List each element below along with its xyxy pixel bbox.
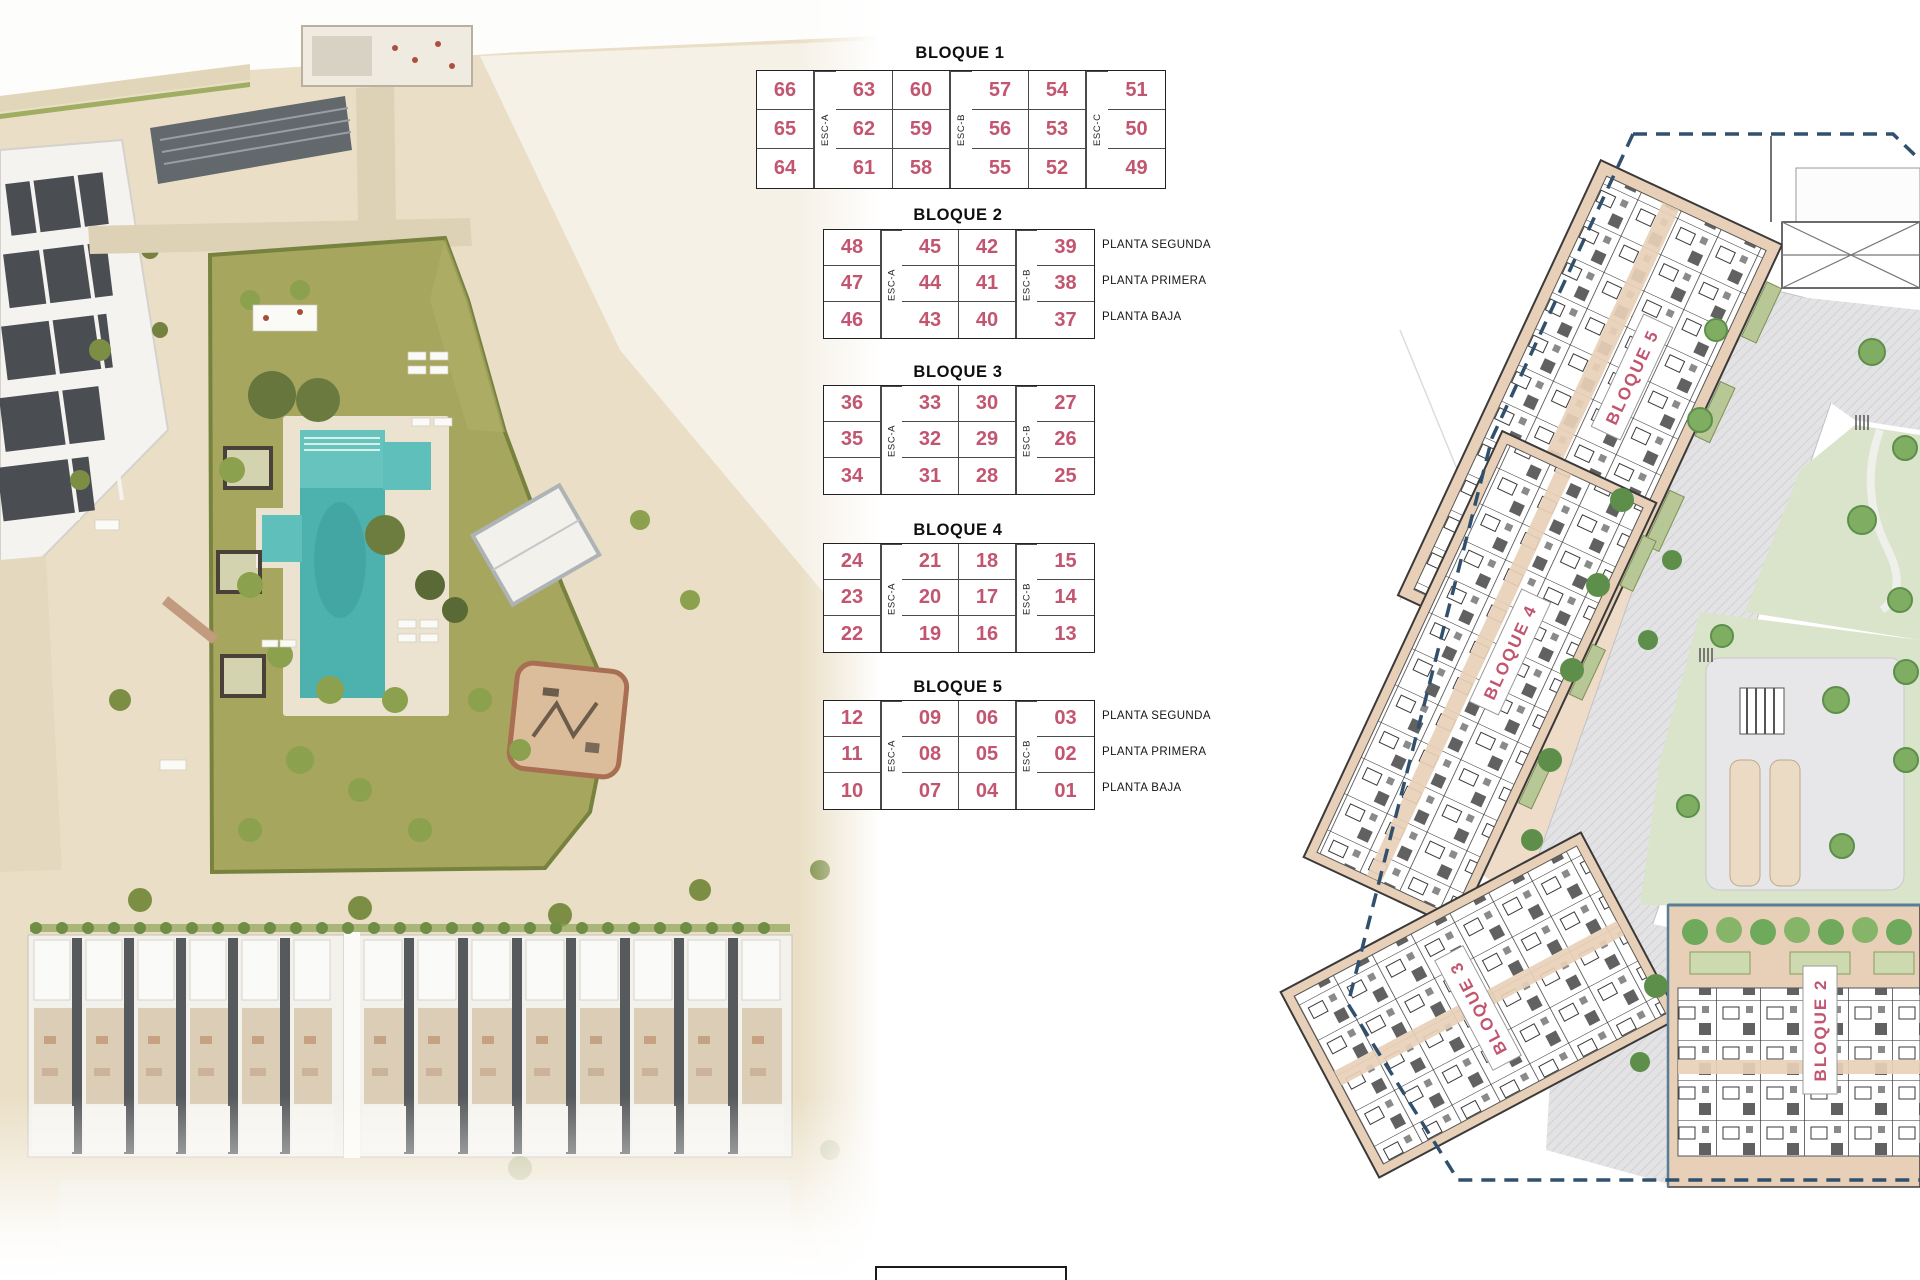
- unit-number: 27: [1037, 386, 1094, 422]
- unit-number: 56: [972, 110, 1029, 149]
- unit-number: 20: [902, 580, 959, 616]
- unit-number: 46: [824, 302, 881, 338]
- unit-number: 07: [902, 773, 959, 809]
- unit-number: 12: [824, 701, 881, 737]
- stair-label: ESC-B: [1016, 230, 1037, 338]
- bloque-grid: 12ESC-A0906ESC-B031108050210070401: [823, 700, 1095, 810]
- unit-number: 55: [972, 149, 1029, 188]
- unit-number: 16: [959, 616, 1016, 652]
- unit-number: 49: [1108, 149, 1165, 188]
- bloque-title: BLOQUE 2: [823, 206, 1093, 225]
- planta-label: PLANTA SEGUNDA: [1102, 710, 1211, 722]
- unit-number: 54: [1029, 71, 1086, 110]
- unit-number: 03: [1037, 701, 1094, 737]
- unit-number: 26: [1037, 422, 1094, 458]
- unit-number: 18: [959, 544, 1016, 580]
- unit-number: 34: [824, 458, 881, 494]
- unit-number: 11: [824, 737, 881, 773]
- page: BLOQUE 5 BLOQUE 4 BLOQUE 3 BLOQUE 2 BLOQ…: [0, 0, 1920, 1280]
- unit-number: 40: [959, 302, 1016, 338]
- stair-label: ESC-C: [1086, 71, 1108, 188]
- unit-number: 60: [893, 71, 950, 110]
- stair-label: ESC-B: [950, 71, 972, 188]
- unit-number: 22: [824, 616, 881, 652]
- planta-label: PLANTA SEGUNDA: [1102, 239, 1211, 251]
- bloque-title: BLOQUE 4: [823, 521, 1093, 540]
- unit-number: 62: [836, 110, 893, 149]
- unit-number: 32: [902, 422, 959, 458]
- planta-label: PLANTA BAJA: [1102, 311, 1182, 323]
- unit-number: 02: [1037, 737, 1094, 773]
- unit-number: 48: [824, 230, 881, 266]
- unit-number: 45: [902, 230, 959, 266]
- unit-number: 31: [902, 458, 959, 494]
- unit-number: 39: [1037, 230, 1094, 266]
- stair-label: ESC-A: [881, 230, 902, 338]
- unit-number: 51: [1108, 71, 1165, 110]
- unit-number: 63: [836, 71, 893, 110]
- stair-label: ESC-A: [814, 71, 836, 188]
- stair-label: ESC-B: [1016, 701, 1037, 809]
- unit-number: 05: [959, 737, 1016, 773]
- planta-label: PLANTA BAJA: [1102, 782, 1182, 794]
- unit-number: 36: [824, 386, 881, 422]
- bloque-title: BLOQUE 1: [756, 44, 1164, 63]
- unit-number: 52: [1029, 149, 1086, 188]
- unit-number: 35: [824, 422, 881, 458]
- unit-number: 37: [1037, 302, 1094, 338]
- planta-label: PLANTA PRIMERA: [1102, 746, 1206, 758]
- stair-label: ESC-A: [881, 386, 902, 494]
- unit-number: 41: [959, 266, 1016, 302]
- stair-label: ESC-A: [881, 701, 902, 809]
- unit-number: 09: [902, 701, 959, 737]
- unit-number: 64: [757, 149, 814, 188]
- bloque-grid: 36ESC-A3330ESC-B273532292634312825: [823, 385, 1095, 495]
- unit-number: 17: [959, 580, 1016, 616]
- unit-tables: BLOQUE 166ESC-A6360ESC-B5754ESC-C5165625…: [0, 0, 1920, 1280]
- unit-number: 10: [824, 773, 881, 809]
- bloque-grid: 48ESC-A4542ESC-B394744413846434037: [823, 229, 1095, 339]
- unit-number: 57: [972, 71, 1029, 110]
- unit-number: 08: [902, 737, 959, 773]
- unit-number: 61: [836, 149, 893, 188]
- stair-label: ESC-B: [1016, 544, 1037, 652]
- unit-number: 30: [959, 386, 1016, 422]
- bloque-title: BLOQUE 5: [823, 678, 1093, 697]
- unit-number: 19: [902, 616, 959, 652]
- unit-number: 53: [1029, 110, 1086, 149]
- unit-number: 66: [757, 71, 814, 110]
- unit-number: 33: [902, 386, 959, 422]
- unit-number: 47: [824, 266, 881, 302]
- unit-number: 28: [959, 458, 1016, 494]
- unit-number: 42: [959, 230, 1016, 266]
- unit-number: 01: [1037, 773, 1094, 809]
- unit-number: 23: [824, 580, 881, 616]
- unit-number: 65: [757, 110, 814, 149]
- unit-number: 50: [1108, 110, 1165, 149]
- bloque-grid: 24ESC-A2118ESC-B152320171422191613: [823, 543, 1095, 653]
- unit-number: 14: [1037, 580, 1094, 616]
- stair-label: ESC-B: [1016, 386, 1037, 494]
- planta-label: PLANTA PRIMERA: [1102, 275, 1206, 287]
- unit-number: 59: [893, 110, 950, 149]
- unit-number: 29: [959, 422, 1016, 458]
- unit-number: 38: [1037, 266, 1094, 302]
- unit-number: 25: [1037, 458, 1094, 494]
- unit-number: 13: [1037, 616, 1094, 652]
- bloque-grid: 66ESC-A6360ESC-B5754ESC-C516562595653506…: [756, 70, 1166, 189]
- unit-number: 43: [902, 302, 959, 338]
- bloque-title: BLOQUE 3: [823, 363, 1093, 382]
- unit-number: 58: [893, 149, 950, 188]
- unit-number: 44: [902, 266, 959, 302]
- unit-number: 06: [959, 701, 1016, 737]
- unit-number: 24: [824, 544, 881, 580]
- stair-label: ESC-A: [881, 544, 902, 652]
- unit-number: 21: [902, 544, 959, 580]
- unit-number: 15: [1037, 544, 1094, 580]
- legend-box-cut: [875, 1266, 1067, 1280]
- unit-number: 04: [959, 773, 1016, 809]
